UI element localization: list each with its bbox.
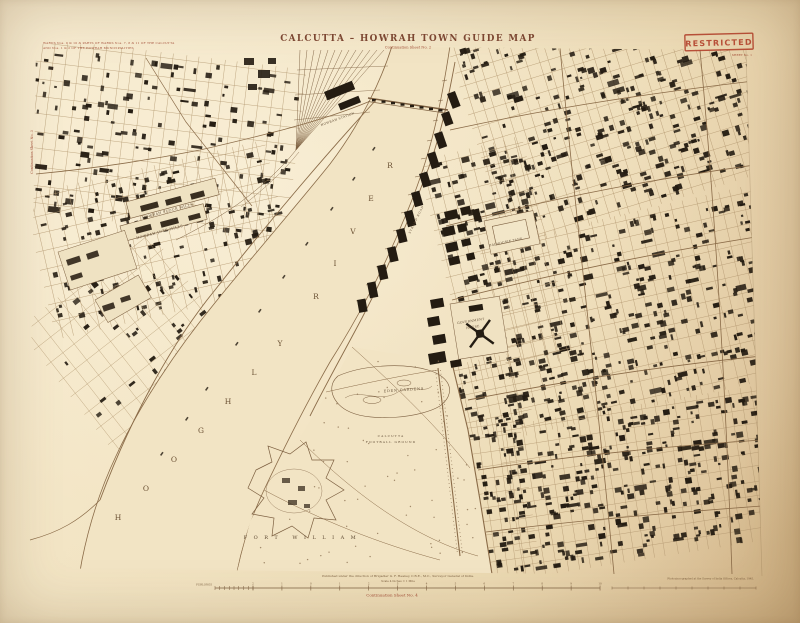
scanned-map-photo: HOWRAH FLOUR MILLSHOWRAH JUTE MILLSHOWRA…: [0, 0, 800, 623]
svg-text:4: 4: [426, 582, 428, 586]
svg-text:R: R: [387, 161, 393, 170]
svg-text:R: R: [313, 292, 319, 301]
corner-note-line1: WARDS Nos. 9 & 10 & PARTS OF WARDS Nos. …: [43, 41, 175, 45]
margin-furniture: 21012345678910: [215, 582, 756, 591]
footer-scale-caption: Scale 4 Inches = 1 Mile: [381, 579, 415, 583]
footer-print-note: Photozincographed at the Survey of India…: [667, 577, 754, 581]
svg-text:8: 8: [541, 582, 543, 586]
svg-text:1: 1: [339, 582, 341, 586]
map-canvas: HOWRAH FLOUR MILLSHOWRAH JUTE MILLSHOWRA…: [0, 0, 800, 623]
svg-text:10: 10: [598, 582, 602, 586]
footer-scale-unit: FURLONGS: [196, 583, 212, 587]
svg-text:CALCUTTA: CALCUTTA: [378, 434, 405, 438]
svg-text:G: G: [198, 426, 204, 435]
map-content: HOWRAH FLOUR MILLSHOWRAH JUTE MILLSHOWRA…: [4, 0, 800, 596]
map-title: CALCUTTA – HOWRAH TOWN GUIDE MAP: [280, 34, 536, 44]
restricted-stamp: RESTRICTED: [685, 33, 753, 51]
restricted-stamp-text: RESTRICTED: [685, 38, 753, 49]
svg-text:I: I: [334, 259, 337, 268]
sheet-edge-line: [746, 50, 762, 576]
footer-imprint: Published under the direction of Brigadi…: [322, 574, 474, 578]
svg-text:E: E: [368, 194, 373, 203]
footer-continuation: Continuation Sheet No. 4: [366, 593, 418, 598]
svg-text:O: O: [143, 484, 149, 493]
svg-text:H: H: [115, 513, 122, 522]
sheet-note: SHEET No. 1: [732, 53, 752, 57]
svg-text:V: V: [349, 227, 356, 236]
svg-text:2: 2: [368, 582, 370, 586]
svg-text:L: L: [252, 368, 257, 377]
corner-note-line2: AND Nos. 1 & 2 OF THE HOWRAH MUNICIPALIT…: [42, 46, 134, 50]
svg-text:O: O: [171, 455, 177, 464]
svg-text:1: 1: [281, 582, 283, 586]
dalhousie-square: [484, 211, 540, 255]
svg-text:6: 6: [484, 582, 486, 586]
svg-text:FORT WILLIAM: FORT WILLIAM: [244, 535, 363, 541]
svg-text:9: 9: [570, 582, 572, 586]
svg-text:2: 2: [252, 582, 254, 586]
svg-text:Y: Y: [277, 339, 284, 348]
left-edge-note: Continuation Sheet No. 3: [30, 130, 34, 174]
svg-text:7: 7: [512, 582, 514, 586]
svg-text:0: 0: [310, 582, 312, 586]
map-subtitle: Continuation Sheet No. 2: [385, 46, 431, 50]
svg-text:H: H: [225, 397, 232, 406]
svg-text:5: 5: [455, 582, 457, 586]
svg-text:FOOTBALL GROUND: FOOTBALL GROUND: [366, 440, 417, 444]
scale-bar: 21012345678910: [215, 582, 756, 591]
